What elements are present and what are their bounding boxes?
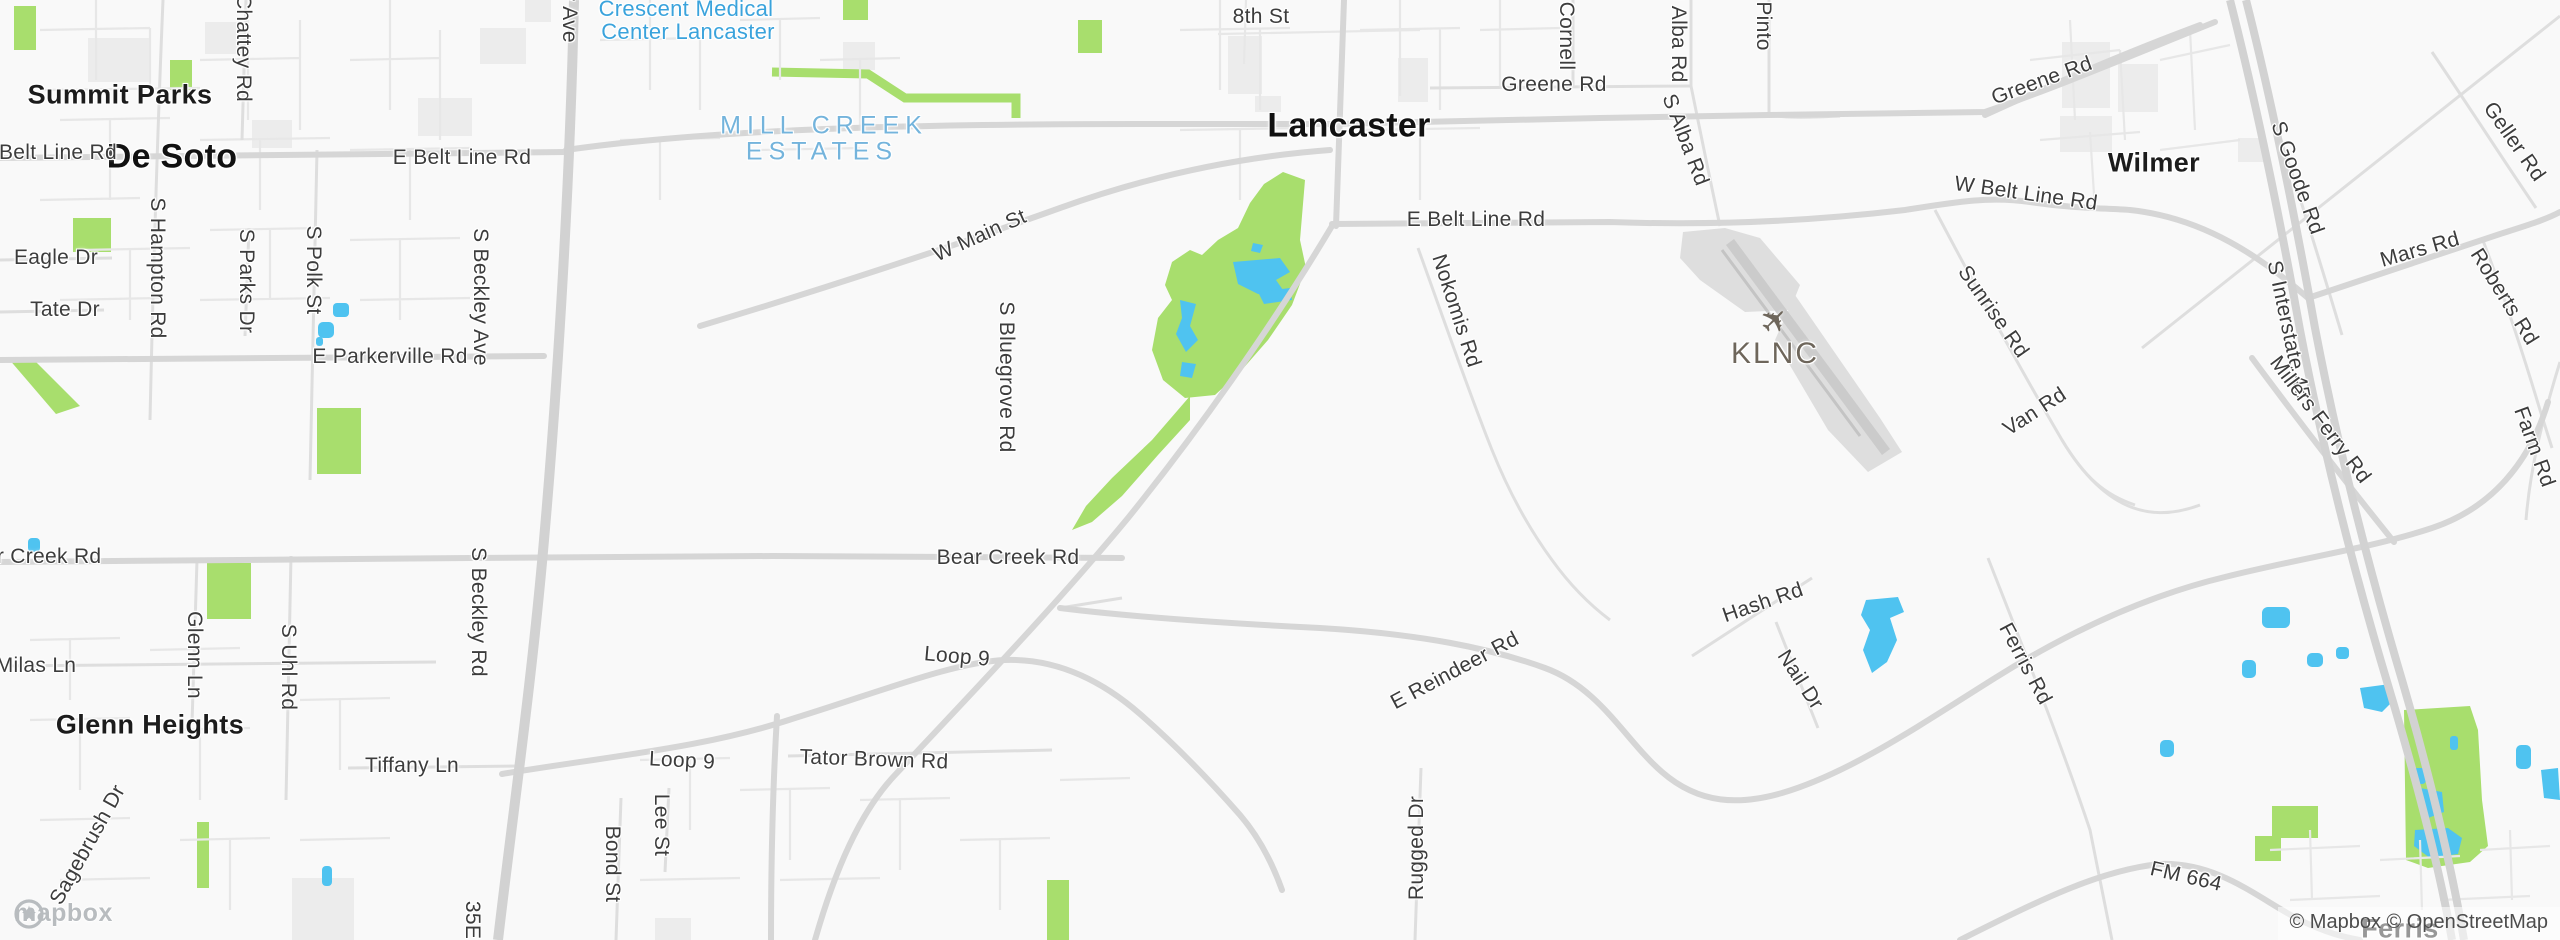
map-label-s-beckley-ave: S Beckley Ave bbox=[468, 228, 492, 366]
mapbox-badge-icon bbox=[14, 899, 44, 929]
map-label-e-belt-line-rd-desoto: E Belt Line Rd bbox=[393, 146, 531, 170]
map-labels-layer: Summit ParksDe SotoLancasterWilmerGlenn … bbox=[0, 0, 2560, 940]
map-label-eighth-st: 8th St bbox=[1233, 5, 1290, 29]
map-label-s-goode-rd: S Goode Rd bbox=[2265, 118, 2328, 238]
map-label-van-rd: Van Rd bbox=[1999, 383, 2071, 441]
mapbox-logo[interactable]: mapbox bbox=[14, 899, 113, 928]
map-label-roberts-rd: Roberts Rd bbox=[2465, 244, 2543, 349]
map-label-sagebrush-dr: Sagebrush Dr bbox=[45, 781, 131, 909]
map-label-mill-creek-estates-line2: ESTATES bbox=[746, 138, 898, 167]
map-label-milas-ln: Milas Ln bbox=[0, 654, 76, 678]
map-label-belt-line-rd-west-edge: Belt Line Rd bbox=[0, 141, 117, 165]
map-label-de-soto: De Soto bbox=[107, 138, 238, 177]
map-label-mill-creek-estates-line1: MILL CREEK bbox=[720, 112, 928, 141]
map-label-farm-rd: Farm Rd bbox=[2508, 404, 2559, 491]
map-label-bear-creek-rd-west: Bear Creek Rd bbox=[0, 545, 101, 569]
map-label-hash-rd: Hash Rd bbox=[1719, 578, 1806, 628]
map-attribution[interactable]: © Mapbox © OpenStreetMap bbox=[2278, 907, 2560, 940]
map-label-cornell: Cornell bbox=[1554, 2, 1578, 71]
map-label-s-hampton-rd: S Hampton Rd bbox=[145, 197, 169, 338]
map-label-loop-9-west: Loop 9 bbox=[648, 747, 715, 774]
map-label-tiffany-ln: Tiffany Ln bbox=[365, 754, 459, 778]
map-canvas[interactable]: Summit ParksDe SotoLancasterWilmerGlenn … bbox=[0, 0, 2560, 940]
map-label-lee-st: Lee St bbox=[649, 794, 673, 857]
map-label-pinto: Pinto bbox=[1751, 1, 1775, 50]
map-label-eagle-dr: Eagle Dr bbox=[14, 246, 98, 270]
map-label-bear-creek-rd: Bear Creek Rd bbox=[937, 546, 1080, 570]
map-label-summit-parks: Summit Parks bbox=[28, 80, 213, 111]
map-label-e-belt-line-rd-lancaster: E Belt Line Rd bbox=[1407, 208, 1545, 232]
map-label-bond-st: Bond St bbox=[600, 826, 624, 903]
map-label-s-bluegrove-rd: S Bluegrove Rd bbox=[994, 301, 1018, 452]
map-label-tate-dr: Tate Dr bbox=[30, 298, 100, 322]
map-label-chattey-rd: Chattey Rd bbox=[231, 0, 255, 102]
map-label-glenn-ln: Glenn Ln bbox=[182, 611, 206, 699]
map-label-s-parks-dr: S Parks Dr bbox=[234, 229, 258, 334]
map-label-fm-664: FM 664 bbox=[2148, 857, 2225, 897]
map-label-sunrise-rd: Sunrise Rd bbox=[1953, 261, 2034, 362]
map-label-e-reindeer-rd: E Reindeer Rd bbox=[1387, 627, 1523, 715]
map-label-glenn-heights: Glenn Heights bbox=[56, 710, 244, 741]
map-label-w-main-st: W Main St bbox=[930, 205, 1031, 267]
map-label-loop-9-east: Loop 9 bbox=[923, 642, 991, 672]
map-label-i35e: 35E bbox=[460, 901, 484, 939]
map-label-s-polk-st: S Polk St bbox=[301, 225, 325, 314]
map-label-crescent-medical-line2: Center Lancaster bbox=[601, 19, 775, 45]
map-label-nail-dr: Nail Dr bbox=[1772, 646, 1828, 715]
map-label-s-uhl-rd: S Uhl Rd bbox=[276, 624, 300, 710]
map-label-s-beckley-rd: S Beckley Rd bbox=[466, 547, 490, 677]
map-label-tator-brown-rd: Tator Brown Rd bbox=[799, 745, 949, 774]
map-label-w-belt-line-rd: W Belt Line Rd bbox=[1953, 172, 2099, 216]
map-label-rugged-dr: Rugged Dr bbox=[1405, 796, 1429, 900]
map-label-s-alba-rd: S Alba Rd bbox=[1657, 91, 1714, 189]
map-label-nokomis-rd: Nokomis Rd bbox=[1426, 251, 1485, 370]
map-label-n-alba-rd: N Alba Rd bbox=[1666, 0, 1690, 83]
map-label-s-beckley-ave-top: S Beckley Ave bbox=[557, 0, 581, 43]
map-label-lancaster: Lancaster bbox=[1267, 107, 1430, 146]
map-label-greene-rd: Greene Rd bbox=[1501, 73, 1606, 97]
map-label-ferris-rd: Ferris Rd bbox=[1994, 619, 2057, 709]
map-label-geller-rd: Geller Rd bbox=[2478, 98, 2550, 187]
map-label-mars-rd: Mars Rd bbox=[2378, 227, 2463, 273]
map-label-millers-ferry-rd: Millers Ferry Rd bbox=[2264, 352, 2375, 489]
map-label-greene-rd-wilmer: Greene Rd bbox=[1988, 52, 2095, 111]
map-label-e-parkerville-rd: E Parkerville Rd bbox=[312, 345, 467, 369]
map-label-wilmer: Wilmer bbox=[2108, 148, 2200, 179]
